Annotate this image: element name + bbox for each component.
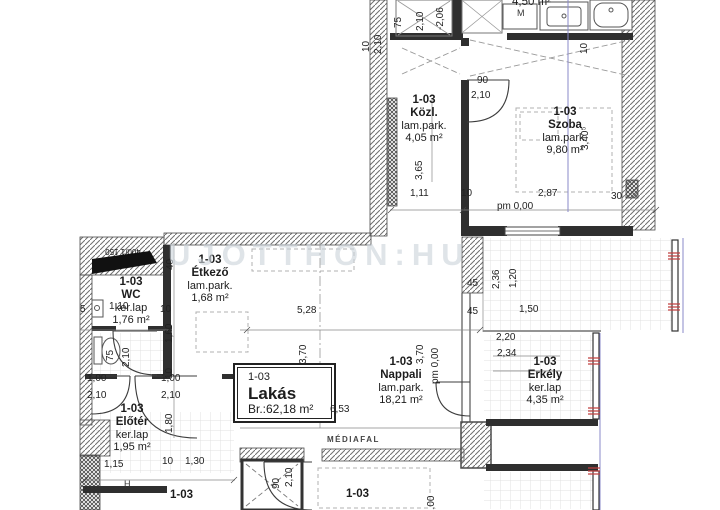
bathtub [590, 0, 632, 30]
unit-name: Lakás [248, 384, 331, 404]
room-label-eloter: 1-03 Előtér ker.lap 1,95 m² [100, 403, 164, 454]
stair-section-label: 400/1 150 [94, 247, 152, 256]
dining-table [196, 312, 248, 352]
room-code-bottom-right: 1-03 [346, 488, 369, 500]
room-label-szoba: 1-03 Szoba lam.park. 9,80 m² [515, 106, 615, 157]
room-label-wc: 1-03 WC ker.lap 1,76 m² [95, 276, 167, 327]
unit-area: Br.:62,18 m² [248, 403, 331, 417]
washing-machine-label: M [517, 8, 525, 18]
room-label-kozl: 1-03 Közl. lam.park. 4,05 m² [384, 94, 464, 145]
room-code-bottom-left: 1-03 [170, 489, 193, 501]
watermark: UJOTTHON:HU [168, 237, 548, 273]
mediafal-label: MÉDIAFAL [327, 435, 417, 444]
door-szoba [467, 80, 509, 122]
ceiling-projection-lines [402, 40, 630, 76]
window [505, 227, 560, 235]
h-mark-label: H [124, 479, 131, 489]
unit-summary-box: 1-03 Lakás Br.:62,18 m² [233, 363, 336, 423]
shaft [242, 460, 302, 510]
room-label-erkely: 1-03 Erkély ker.lap 4,35 m² [506, 356, 584, 407]
room-label-nappali: 1-03 Nappali lam.park. 18,21 m² [358, 356, 444, 407]
floor-plan-canvas: UJOTTHON:HU 1-03 Közl. lam.park. 4,05 m²… [0, 0, 720, 510]
toilet-tank [94, 337, 102, 364]
room-area-furdo: 4,50 m² [512, 0, 551, 8]
toilet-bowl [102, 338, 120, 364]
